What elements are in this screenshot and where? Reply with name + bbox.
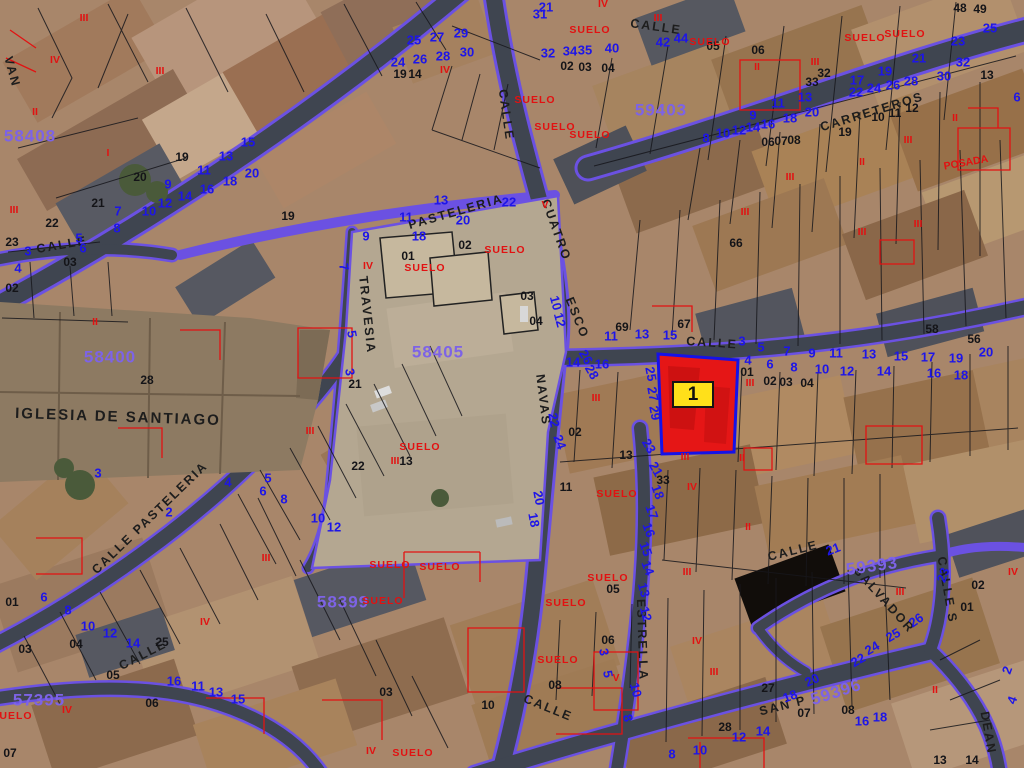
subparcel-roman-label: IV [200,617,210,628]
parcel-number-label: 01 [401,250,414,262]
house-number-label: 28 [436,50,450,63]
parcel-number-label: 04 [69,638,82,650]
parcel-number-label: 19 [393,68,406,80]
house-number-label: 15 [637,540,654,558]
house-number-label: 6 [79,242,86,255]
parcel-number-label: 01 [960,601,973,613]
suelo-label: SUELO [399,442,440,453]
house-number-label: 15 [894,350,908,363]
subparcel-roman-label: IV [366,746,376,757]
subparcel-roman-label: IV [440,65,450,76]
parcel-number-label: 19 [175,151,188,163]
suelo-label: SUELO [419,562,460,573]
parcel-number-label: 69 [615,321,628,333]
house-number-label: 25 [643,366,658,383]
house-number-label: 3 [738,335,745,348]
house-number-label: 13 [209,686,223,699]
parcel-number-label: 23 [5,236,18,248]
subparcel-roman-label: IV [50,55,60,66]
parcel-number-label: 08 [841,704,854,716]
house-number-label: 14 [126,637,140,650]
house-number-label: 32 [541,47,555,60]
suelo-label: SUELO [362,596,403,607]
house-number-label: 24 [862,639,881,657]
house-number-label: 12 [103,627,117,640]
house-number-label: 15 [663,329,677,342]
house-number-label: 12 [158,197,172,210]
suelo-label: SUELO [884,29,925,40]
house-number-label: 25 [983,22,997,35]
house-number-label: 18 [412,230,426,243]
block-number-label: 57395 [13,692,65,709]
parcel-number-label: 11 [560,481,573,493]
subparcel-roman-label: IV [692,636,702,647]
subparcel-roman-label: II [745,522,751,533]
house-number-label: 5 [757,341,764,354]
house-number-label: 16 [761,118,775,131]
house-number-label: 17 [921,351,935,364]
house-number-label: 14 [746,121,760,134]
parcel-number-label: 02 [5,282,18,294]
subparcel-roman-label: III [681,452,690,463]
suelo-label: SUELO [404,263,445,274]
house-number-label: 12 [638,605,654,622]
parcel-number-label: 14 [408,68,421,80]
house-number-label: 8 [280,493,287,506]
house-number-label: 40 [605,42,619,55]
house-number-label: 13 [434,194,448,207]
parcel-number-label: 06 [761,136,774,148]
house-number-label: 13 [635,328,649,341]
parcel-number-label: 32 [817,67,830,79]
suelo-label: SUELO [587,573,628,584]
house-number-label: 18 [954,369,968,382]
parcel-number-label: 13 [619,449,632,461]
house-number-label: 18 [783,112,797,125]
subparcel-roman-label: I [107,148,110,159]
house-number-label: 8 [702,132,709,145]
house-number-label: 16 [855,715,869,728]
suelo-label: SUELO [0,711,33,722]
parcel-number-label: 04 [800,377,813,389]
highlighted-parcel-number: 1 [688,384,699,406]
suelo-label: SUELO [537,655,578,666]
subparcel-roman-label: III [896,587,905,598]
subparcel-roman-label: II [952,113,958,124]
house-number-label: 7 [783,345,790,358]
house-number-label: 30 [460,46,474,59]
suelo-label: SUELO [569,25,610,36]
house-number-label: 22 [848,651,867,669]
house-number-label: 4 [1005,694,1020,705]
subparcel-roman-label: III [654,13,663,24]
parcel-number-label: 28 [140,374,153,386]
house-number-label: 3 [24,245,31,258]
subparcel-roman-label: II [739,453,745,464]
parcel-number-label: 02 [560,60,573,72]
house-number-label: 13 [636,581,652,598]
parcel-number-label: 12 [905,102,918,114]
house-number-label: 23 [951,35,965,48]
parcel-number-label: 03 [520,290,533,302]
subparcel-roman-label: II [754,62,760,73]
house-number-label: 7 [114,205,121,218]
street-name-label: CALLE [522,693,575,724]
house-number-label: 27 [430,31,444,44]
house-number-label: 4 [14,262,21,275]
suelo-label: SUELO [596,489,637,500]
house-number-label: 26 [886,79,900,92]
house-number-label: 16 [927,367,941,380]
house-number-label: 32 [956,56,970,69]
house-number-label: 10 [548,294,564,311]
subparcel-roman-label: V [612,673,619,684]
parcel-number-label: 48 [953,2,966,14]
house-number-label: 6 [766,358,773,371]
house-number-label: 28 [904,75,918,88]
house-number-label: 14 [756,725,770,738]
house-number-label: 27 [645,386,660,403]
parcel-number-label: 13 [980,69,993,81]
house-number-label: 42 [656,36,670,49]
house-number-label: 20 [245,167,259,180]
parcel-number-label: 02 [763,375,776,387]
house-number-label: 18 [223,175,237,188]
house-number-label: 11 [399,211,413,224]
house-number-label: 16 [167,675,181,688]
parcel-number-label: 05 [106,669,119,681]
house-number-label: 8 [668,748,675,761]
parcel-number-label: 33 [656,474,669,486]
subparcel-roman-label: II [92,317,98,328]
street-name-label: TRAVESIA [357,275,378,354]
house-number-label: 15 [231,693,245,706]
house-number-label: 8 [64,604,71,617]
house-number-label: 17 [643,503,660,521]
house-number-label: 21 [824,540,842,557]
house-number-label: 10 [815,363,829,376]
map-labels-layer: CALLECARRETEROSCALLEPASTELERIATRAVESIACU… [0,0,1024,768]
block-number-label: 58399 [317,594,369,611]
house-number-label: 10 [716,127,730,140]
suelo-label: SUELO [569,130,610,141]
house-number-label: 14 [639,559,656,577]
parcel-number-label: 22 [351,460,364,472]
block-number-label: 58400 [84,349,136,366]
house-number-label: 16 [640,521,657,539]
parcel-number-label: 03 [63,256,76,268]
subparcel-roman-label: IV [363,261,373,272]
house-number-label: 11 [191,680,205,693]
parcel-number-label: 11 [889,107,902,119]
parcel-number-label: 04 [529,315,542,327]
parcel-number-label: 21 [348,378,361,390]
subparcel-roman-label: III [262,553,271,564]
house-number-label: 44 [674,32,688,45]
subparcel-roman-label: III [904,135,913,146]
parcel-number-label: 28 [718,721,731,733]
house-number-label: 12 [327,521,341,534]
house-number-label: 4 [224,476,231,489]
house-number-label: 29 [647,405,662,422]
suelo-label: SUELO [844,33,885,44]
parcel-number-label: 03 [779,376,792,388]
house-number-label: 31 [533,8,547,21]
house-number-label: 12 [552,311,568,328]
house-number-label: 3 [343,367,357,376]
house-number-label: 6 [1013,91,1020,104]
block-number-label: 58408 [4,128,56,145]
subparcel-roman-label: II [32,107,38,118]
parcel-number-label: 20 [133,171,146,183]
block-number-label: 58405 [412,344,464,361]
house-number-label: 13 [862,348,876,361]
house-number-label: 6 [259,485,266,498]
parcel-number-label: 05 [606,583,619,595]
parcel-number-label: 03 [18,643,31,655]
parcel-number-label: 10 [481,699,494,711]
house-number-label: 7 [337,262,351,271]
house-number-label: 14 [178,190,192,203]
suelo-label: SUELO [484,245,525,256]
block-number-label: 59393 [845,554,899,578]
parcel-number-label: 19 [281,210,294,222]
parcel-number-label: 07 [3,747,16,759]
parcel-number-label: 27 [761,682,774,694]
subparcel-roman-label: V [541,200,548,211]
house-number-label: 34 [563,45,577,58]
house-number-label: 24 [551,433,568,451]
house-number-label: 11 [829,347,843,360]
subparcel-roman-label: II [932,685,938,696]
parcel-number-label: 19 [838,126,851,138]
house-number-label: 9 [808,347,815,360]
house-number-label: 15 [241,136,255,149]
house-number-label: 12 [732,124,746,137]
house-number-label: 13 [798,91,812,104]
house-number-label: 20 [803,671,822,689]
house-number-label: 10 [142,205,156,218]
parcel-number-label: 03 [578,61,591,73]
subparcel-roman-label: III [710,667,719,678]
parcel-number-label: 14 [965,754,978,766]
subparcel-roman-label: POSADA [943,154,989,172]
house-number-label: 25 [407,34,421,47]
house-number-label: 9 [362,230,369,243]
house-number-label: 10 [693,744,707,757]
house-number-label: 11 [197,164,211,177]
house-number-label: 20 [805,106,819,119]
parcel-number-label: 13 [399,455,412,467]
subparcel-roman-label: III [10,205,19,216]
house-number-label: 13 [219,150,233,163]
parcel-number-label: 66 [729,237,742,249]
parcel-number-label: 06 [751,44,764,56]
house-number-label: 18 [873,711,887,724]
house-number-label: 3 [94,467,101,480]
subparcel-roman-label: III [786,172,795,183]
parcel-number-label: 25 [155,636,168,648]
subparcel-roman-label: III [391,456,400,467]
house-number-label: 22 [546,412,561,429]
house-number-label: 6 [40,591,47,604]
house-number-label: 30 [937,70,951,83]
subparcel-roman-label: IV [598,0,608,9]
parcel-number-label: 02 [458,239,471,251]
house-number-label: 21 [912,52,926,65]
house-number-label: 14 [877,365,891,378]
parcel-number-label: 22 [45,217,58,229]
subparcel-roman-label: II [859,157,865,168]
parcel-number-label: 08 [548,679,561,691]
street-name-label: CALLE [686,335,738,351]
subparcel-roman-label: III [746,378,755,389]
house-number-label: 12 [840,365,854,378]
parcel-number-label: 06 [601,634,614,646]
house-number-label: 24 [867,82,881,95]
parcel-number-label: 67 [677,318,690,330]
parcel-number-label: 56 [967,333,980,345]
subparcel-roman-label: IV [62,705,72,716]
street-name-label: VAN [2,55,22,89]
house-number-label: 20 [531,490,546,507]
suelo-label: SUELO [369,560,410,571]
subparcel-roman-label: III [306,426,315,437]
house-number-label: 11 [771,97,785,110]
house-number-label: 2 [1000,664,1015,675]
subparcel-roman-label: IV [687,482,697,493]
parcel-number-label: 49 [973,3,986,15]
house-number-label: 20 [456,214,470,227]
parcel-number-label: 02 [568,426,581,438]
suelo-label: SUELO [392,748,433,759]
house-number-label: 29 [454,27,468,40]
suelo-label: SUELO [514,95,555,106]
subparcel-roman-label: III [741,207,750,218]
subparcel-roman-label: III [811,57,820,68]
house-number-label: 10 [628,681,644,698]
house-number-label: 10 [81,620,95,633]
subparcel-roman-label: III [156,66,165,77]
house-number-label: 18 [526,512,541,529]
parcel-number-label: 21 [91,197,104,209]
subparcel-roman-label: IV [1008,567,1018,578]
parcel-number-label: 07 [774,135,787,147]
house-number-label: 8 [113,222,120,235]
parcel-number-label: 02 [971,579,984,591]
parcel-number-label: 58 [925,323,938,335]
house-number-label: 26 [413,53,427,66]
street-name-label: CALLE [766,539,819,564]
parcel-number-label: 06 [145,697,158,709]
parcel-number-label: 13 [933,754,946,766]
house-number-label: 22 [849,86,863,99]
subparcel-roman-label: III [914,219,923,230]
block-number-label: 59403 [635,102,687,119]
suelo-label: SUELO [689,37,730,48]
street-name-label: IGLESIA DE SANTIAGO [15,406,221,428]
highlighted-parcel-label[interactable]: 1 [672,381,714,408]
parcel-number-label: 08 [787,134,800,146]
parcel-number-label: 10 [871,111,884,123]
street-name-label: CALLE PASTELERIA [90,460,210,577]
house-number-label: 12 [732,731,746,744]
parcel-number-label: 04 [601,62,614,74]
house-number-label: 5 [345,329,359,338]
house-number-label: 8 [621,713,635,723]
house-number-label: 16 [200,183,214,196]
house-number-label: 19 [878,65,892,78]
subparcel-roman-label: III [592,393,601,404]
house-number-label: 8 [790,361,797,374]
house-number-label: 22 [502,196,516,209]
cadastral-map-viewport: CALLECARRETEROSCALLEPASTELERIATRAVESIACU… [0,0,1024,768]
house-number-label: 2 [165,506,172,519]
subparcel-roman-label: III [80,13,89,24]
parcel-number-label: 03 [379,686,392,698]
house-number-label: 20 [979,346,993,359]
house-number-label: 3 [597,647,611,656]
suelo-label: SUELO [545,598,586,609]
house-number-label: 19 [949,352,963,365]
subparcel-roman-label: III [683,567,692,578]
house-number-label: 10 [311,512,325,525]
house-number-label: 9 [164,178,171,191]
street-name-label: DEAN [978,711,998,756]
house-number-label: 35 [578,44,592,57]
street-name-label: CALLE [496,89,516,142]
parcel-number-label: 07 [797,707,810,719]
parcel-number-label: 01 [5,596,18,608]
subparcel-roman-label: III [858,227,867,238]
house-number-label: 23 [640,436,658,455]
